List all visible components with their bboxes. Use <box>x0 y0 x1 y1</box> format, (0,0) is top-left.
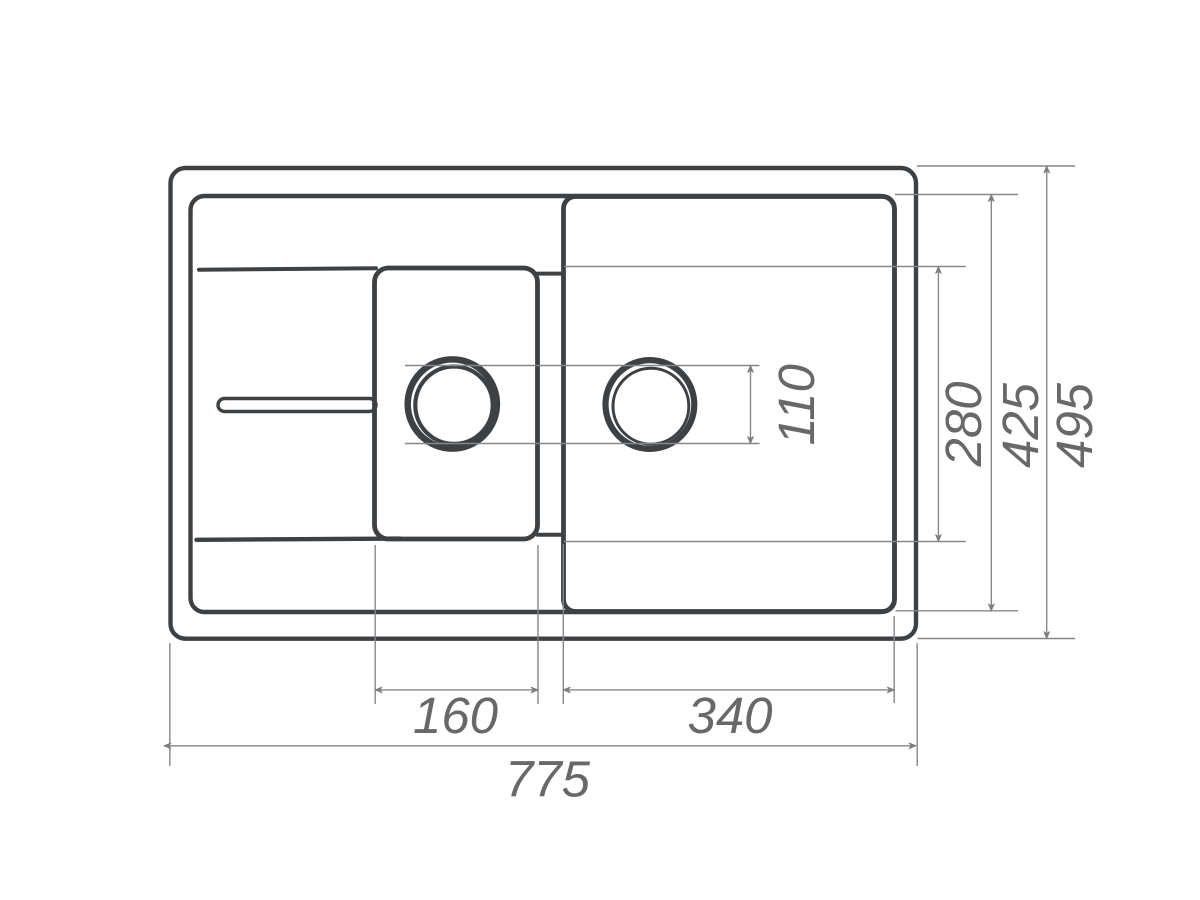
svg-text:110: 110 <box>768 364 825 445</box>
svg-text:495: 495 <box>1046 382 1103 468</box>
svg-text:280: 280 <box>935 381 992 467</box>
svg-text:775: 775 <box>505 751 591 808</box>
svg-text:340: 340 <box>687 687 772 744</box>
svg-text:160: 160 <box>413 687 498 744</box>
svg-text:425: 425 <box>992 382 1049 468</box>
